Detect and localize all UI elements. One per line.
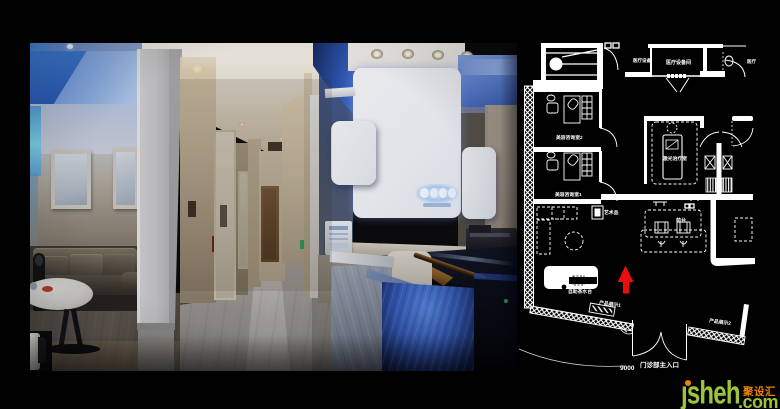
svg-text:产品展示2: 产品展示2 (709, 317, 732, 327)
svg-text:艺术品: 艺术品 (604, 209, 619, 216)
svg-text:医疗设备间: 医疗设备间 (666, 59, 691, 66)
svg-text:9000: 9000 (620, 365, 635, 372)
svg-text:前台: 前台 (676, 217, 686, 224)
svg-text:美容咨询室2: 美容咨询室2 (556, 134, 583, 141)
svg-text:自助茶水台: 自助茶水台 (568, 288, 592, 295)
svg-text:医疗: 医疗 (747, 58, 756, 65)
svg-text:医疗设备: 医疗设备 (633, 57, 651, 64)
svg-text:激光治疗室: 激光治疗室 (663, 155, 687, 162)
svg-text:美容咨询室1: 美容咨询室1 (555, 191, 582, 198)
svg-text:门诊部主入口: 门诊部主入口 (640, 360, 679, 369)
